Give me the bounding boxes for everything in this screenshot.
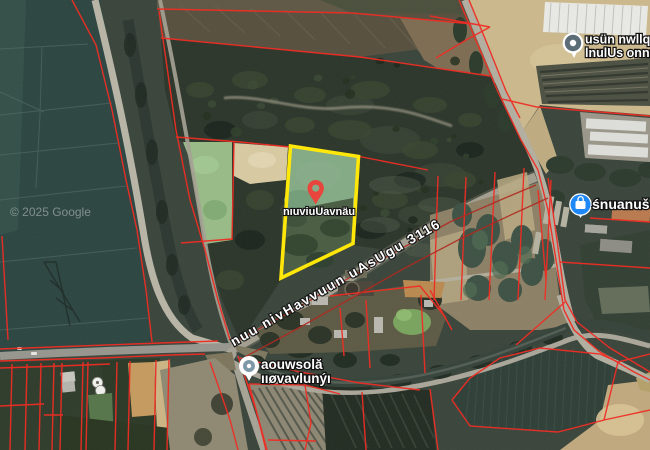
svg-text:ııøvavlunýı: ııøvavlunýı (261, 371, 331, 386)
svg-text:aouwsolă: aouwsolă (261, 357, 323, 372)
svg-text:© 2025 Google: © 2025 Google (10, 205, 91, 219)
svg-text:nıuviuUavnäu: nıuviuUavnäu (283, 206, 355, 218)
svg-text:śnuanušoı: śnuanušoı (592, 196, 650, 212)
svg-text:usün nwllq: usün nwllq (585, 33, 650, 47)
svg-text:lnulUs onnı: lnulUs onnı (585, 46, 650, 60)
